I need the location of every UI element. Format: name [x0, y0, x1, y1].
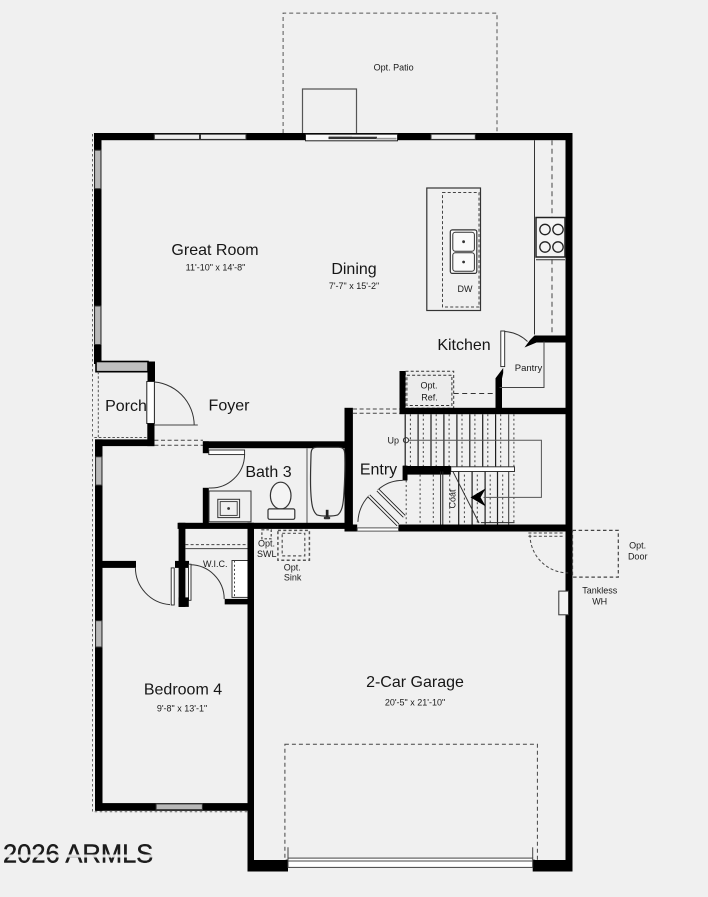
svg-text:2-Car Garage: 2-Car Garage	[366, 674, 464, 691]
svg-text:Coat: Coat	[448, 489, 458, 509]
svg-text:Foyer: Foyer	[209, 398, 251, 415]
svg-text:Pantry: Pantry	[515, 363, 543, 374]
svg-text:20'-5" x 21'-10": 20'-5" x 21'-10"	[385, 698, 445, 708]
svg-text:Up: Up	[387, 436, 399, 446]
svg-text:Opt.: Opt.	[629, 541, 646, 551]
svg-text:Opt.: Opt.	[258, 539, 275, 549]
svg-text:Door: Door	[628, 552, 648, 562]
svg-text:Bath 3: Bath 3	[245, 464, 291, 481]
svg-text:Bedroom 4: Bedroom 4	[144, 682, 222, 699]
svg-text:SWL: SWL	[257, 549, 277, 559]
svg-text:Opt. Patio: Opt. Patio	[374, 63, 414, 73]
svg-text:W.I.C.: W.I.C.	[203, 559, 228, 569]
svg-text:Sink: Sink	[284, 573, 302, 583]
svg-text:Dining: Dining	[331, 261, 376, 278]
svg-text:Ref.: Ref.	[421, 393, 438, 403]
svg-text:DW: DW	[458, 284, 473, 294]
svg-text:WH: WH	[592, 597, 607, 607]
svg-text:Porch: Porch	[105, 398, 147, 415]
svg-text:Tankless: Tankless	[582, 586, 618, 596]
svg-text:Entry: Entry	[360, 462, 397, 479]
svg-text:Opt.: Opt.	[420, 381, 437, 391]
svg-text:Opt.: Opt.	[284, 563, 301, 573]
svg-text:Great Room: Great Room	[171, 242, 258, 259]
svg-text:Kitchen: Kitchen	[437, 337, 490, 354]
svg-text:7'-7" x 15'-2": 7'-7" x 15'-2"	[329, 281, 379, 291]
svg-text:9'-8" x 13'-1": 9'-8" x 13'-1"	[157, 704, 207, 714]
svg-text:11'-10" x 14'-8": 11'-10" x 14'-8"	[186, 263, 246, 273]
